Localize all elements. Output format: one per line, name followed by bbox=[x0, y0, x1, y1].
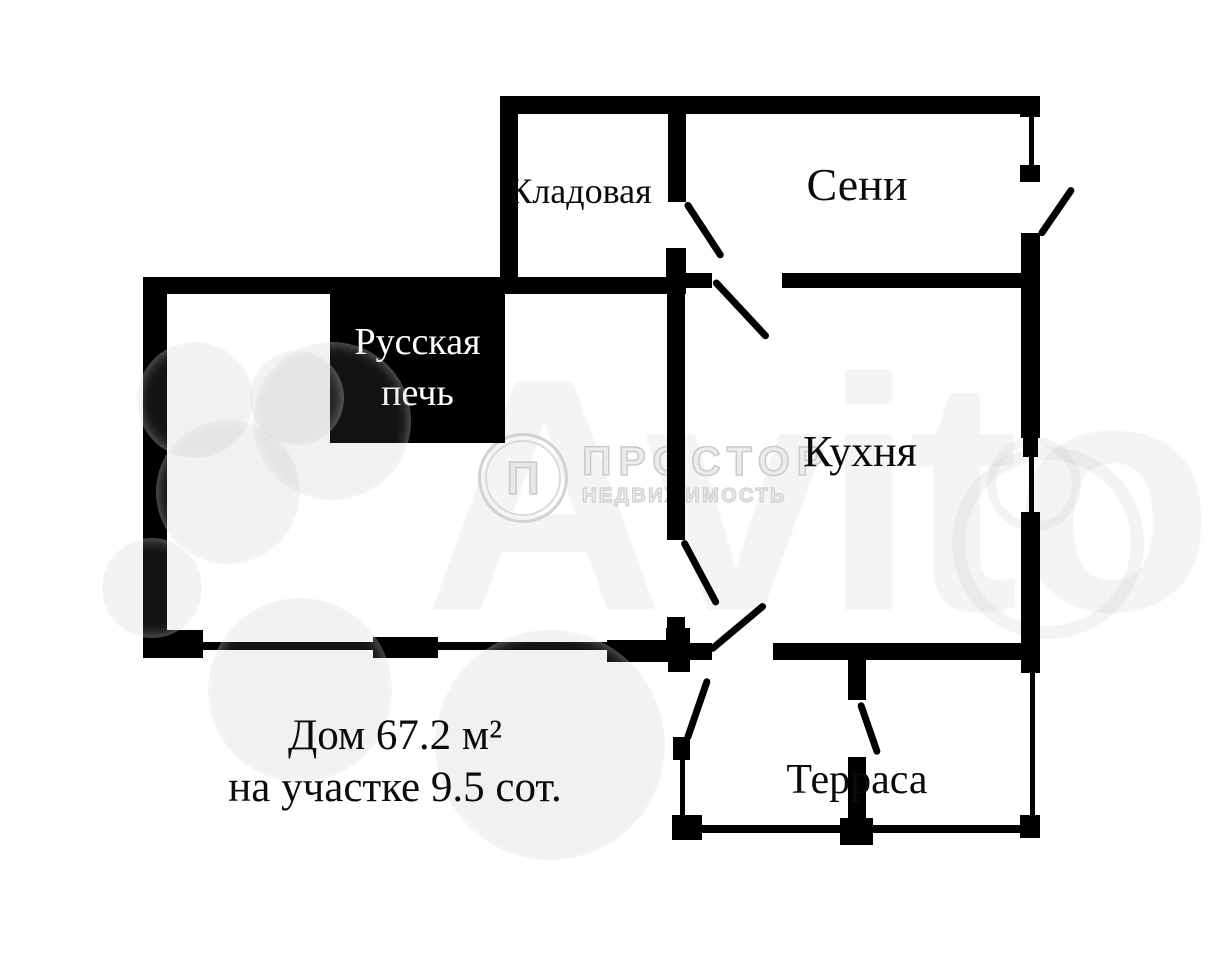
watermark-ring bbox=[952, 447, 1144, 639]
wall-stub bbox=[666, 628, 690, 642]
window bbox=[1029, 117, 1034, 165]
watermark-circle bbox=[253, 342, 411, 500]
floor-plan: Avito П ПРОСТОР НЕДВИЖИМОСТЬ bbox=[0, 0, 1221, 960]
outer-wall-right-corner bbox=[1020, 96, 1040, 117]
door-swing bbox=[684, 677, 712, 741]
outer-wall-top bbox=[500, 96, 1040, 114]
room-label-kitchen: Кухня bbox=[760, 426, 960, 477]
door-swing bbox=[1037, 186, 1076, 238]
door-swing bbox=[857, 701, 882, 755]
area-note: Дом 67.2 м² на участке 9.5 сот. bbox=[215, 710, 575, 815]
terrace-divider-wall bbox=[848, 660, 866, 700]
porch-post bbox=[672, 815, 702, 840]
hall-bottom-wall-stub bbox=[686, 273, 712, 288]
outer-wall-right-lower bbox=[1021, 512, 1040, 673]
outer-wall-right bbox=[1021, 233, 1040, 438]
porch-rail bbox=[1030, 673, 1035, 815]
porch-post bbox=[1020, 815, 1040, 838]
main-room-top-wall bbox=[143, 277, 686, 294]
door-swing bbox=[683, 201, 725, 260]
hall-bottom-wall bbox=[782, 273, 1040, 288]
porch-post bbox=[840, 818, 873, 845]
room-label-terrace: Терраса bbox=[757, 756, 957, 804]
agency-watermark-subtitle: НЕДВИЖИМОСТЬ bbox=[582, 485, 831, 508]
room-label-hall: Сени bbox=[757, 158, 957, 211]
agency-logo-icon: П bbox=[478, 433, 568, 523]
wall-stub bbox=[666, 248, 686, 278]
kitchen-bottom-wall bbox=[773, 643, 1040, 660]
window bbox=[1029, 457, 1034, 512]
room-label-storage: Кладовая bbox=[480, 170, 680, 212]
central-wall bbox=[667, 277, 685, 540]
window-jamb bbox=[1023, 438, 1038, 457]
wall-stub bbox=[668, 660, 690, 672]
watermark-circle bbox=[102, 538, 202, 638]
area-note-line2: на участке 9.5 сот. bbox=[215, 762, 575, 814]
area-note-line1: Дом 67.2 м² bbox=[215, 710, 575, 762]
outer-wall-right-block bbox=[1020, 165, 1040, 182]
porch-rail bbox=[680, 760, 685, 815]
